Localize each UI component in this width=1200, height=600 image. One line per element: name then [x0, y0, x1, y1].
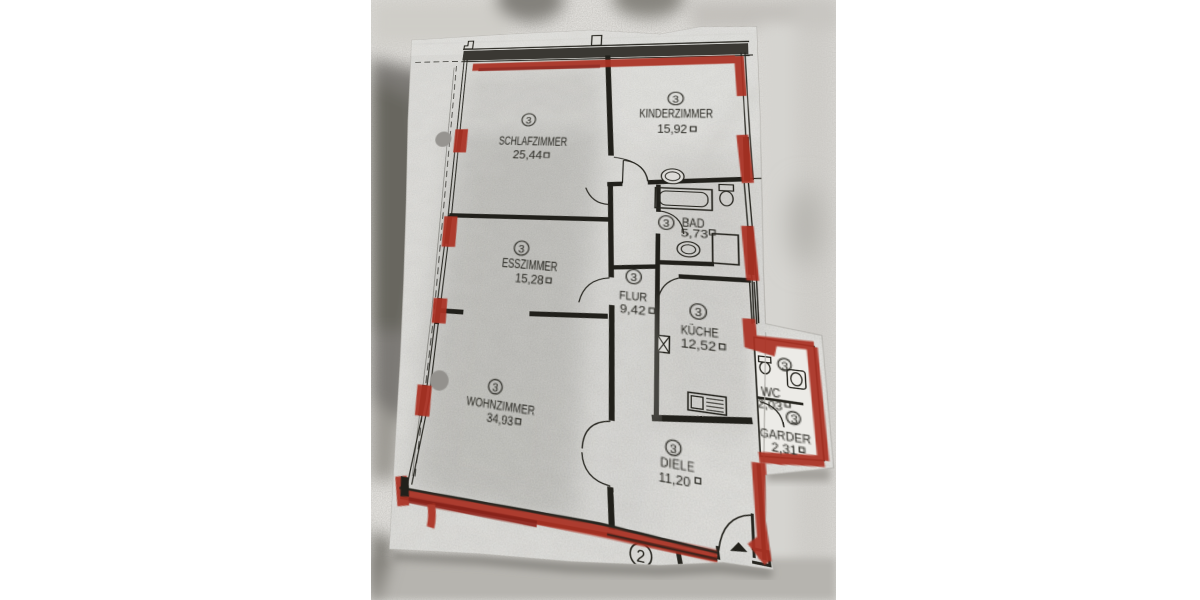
svg-text:9,42: 9,42	[619, 302, 646, 318]
svg-text:3: 3	[695, 305, 702, 320]
svg-text:3: 3	[663, 217, 670, 230]
svg-text:15,28: 15,28	[514, 271, 544, 288]
svg-text:3: 3	[672, 94, 680, 105]
svg-text:SCHLAFZIMMER: SCHLAFZIMMER	[498, 135, 567, 150]
svg-text:15,92: 15,92	[657, 123, 687, 137]
svg-text:3: 3	[790, 414, 798, 428]
svg-text:KINDERZIMMER: KINDERZIMMER	[639, 108, 713, 122]
svg-text:5,73: 5,73	[681, 225, 709, 241]
svg-text:3: 3	[781, 361, 789, 374]
svg-text:25,44: 25,44	[512, 149, 543, 163]
svg-text:3: 3	[630, 270, 637, 284]
